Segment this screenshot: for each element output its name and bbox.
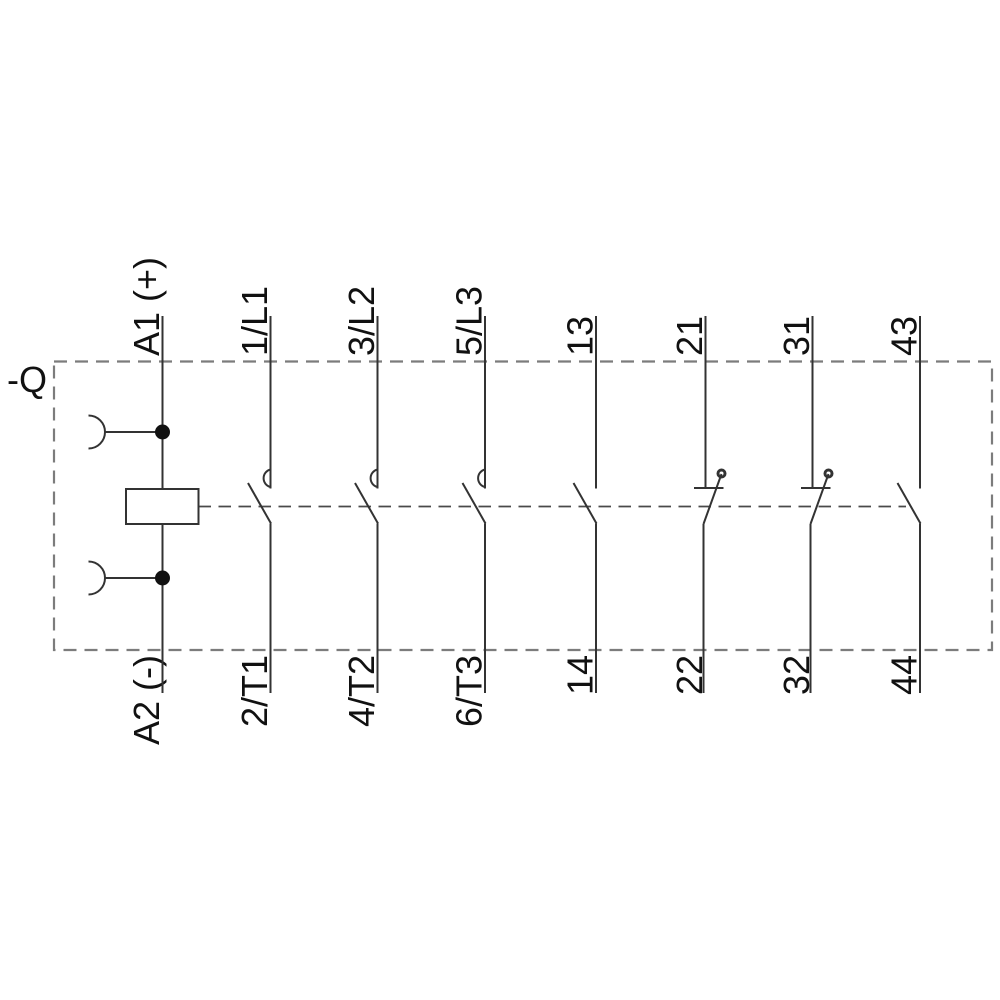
main-contact-arc-icon	[264, 470, 271, 488]
nc-pivot-circle-icon	[718, 470, 725, 477]
terminal-label-top: 5/L3	[449, 286, 490, 356]
pole-43: 4344	[884, 316, 925, 695]
terminal-label-top: 1/L1	[234, 286, 275, 356]
terminal-label-top: 3/L2	[341, 286, 382, 356]
terminal-label-bottom: 6/T3	[449, 655, 490, 727]
contactor-schematic: -Q A1 (+)A2 (-)1/L12/T13/L24/T25/L36/T31…	[0, 0, 1000, 1000]
terminal-label-bottom: 44	[884, 655, 925, 695]
main-contact-arc-icon	[478, 470, 485, 488]
terminal-label-bottom: A2 (-)	[126, 655, 167, 745]
terminal-label-top: 21	[669, 316, 710, 356]
poles-group: A1 (+)A2 (-)1/L12/T13/L24/T25/L36/T31314…	[89, 257, 925, 745]
contact-arm	[574, 483, 597, 524]
terminal-label-top: A1 (+)	[126, 257, 167, 356]
device-designation-label: -Q	[7, 359, 47, 400]
terminal-label-bottom: 2/T1	[234, 655, 275, 727]
contact-arm	[898, 483, 921, 524]
main-contact-arc-icon	[371, 470, 378, 488]
nc-pivot-circle-icon	[825, 470, 832, 477]
pole-31: 3132	[776, 316, 832, 695]
junction-dot-a2	[155, 571, 170, 586]
terminal-label-top: 13	[560, 316, 601, 356]
terminal-label-bottom: 4/T2	[341, 655, 382, 727]
contact-arm	[463, 483, 486, 524]
junction-dot-a1	[155, 425, 170, 440]
terminal-label-bottom: 14	[560, 655, 601, 695]
schematic-page: -Q A1 (+)A2 (-)1/L12/T13/L24/T25/L36/T31…	[0, 0, 1000, 1000]
contact-arm	[248, 483, 271, 524]
clamp-arc-a1	[89, 416, 106, 449]
pole-21: 2122	[669, 316, 725, 695]
pole-a1: A1 (+)A2 (-)	[89, 257, 199, 745]
terminal-label-top: 43	[884, 316, 925, 356]
pole-13: 1314	[560, 316, 601, 695]
clamp-arc-a2	[89, 562, 106, 595]
coil-symbol	[126, 489, 199, 524]
contact-arm	[355, 483, 378, 524]
terminal-label-top: 31	[776, 316, 817, 356]
